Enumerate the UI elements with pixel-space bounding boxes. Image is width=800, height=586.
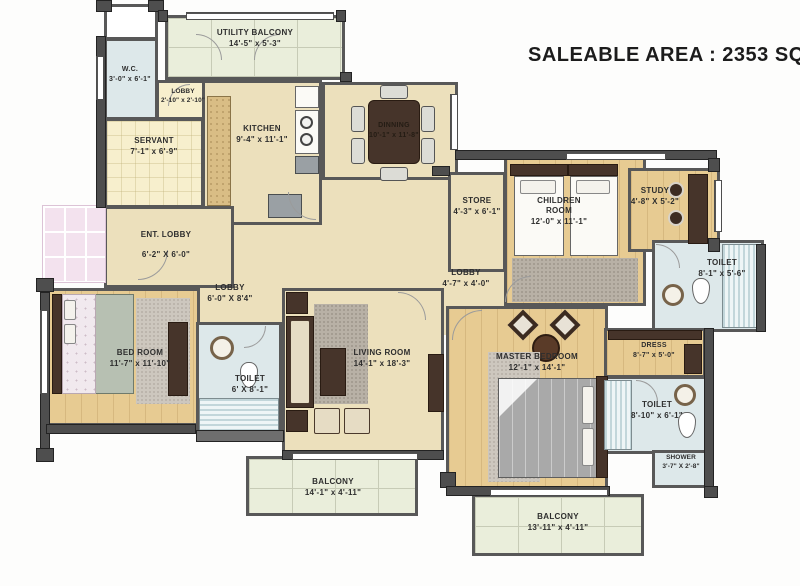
- bed-blanket-fold: [499, 379, 537, 417]
- wall: [46, 424, 196, 434]
- kitchen-cabinet: [207, 96, 231, 206]
- room-label-balcony-left: BALCONY14'-1" x 4'-11": [278, 477, 388, 498]
- page-title: SALEABLE AREA : 2353 SQ.FT: [528, 44, 788, 67]
- dining-chair: [380, 85, 408, 99]
- bed-headboard: [510, 164, 568, 176]
- side-table: [286, 292, 308, 314]
- room-label-living-room: LIVING ROOM14'-1" x 18'-3": [330, 348, 434, 369]
- room-label-utility-balcony: UTILITY BALCONY14'-5" x 5'-3": [185, 28, 325, 49]
- kitchen-counter: [295, 156, 319, 174]
- window: [490, 488, 608, 496]
- room-label-store: STORE4'-3" x 6'-1": [446, 196, 508, 217]
- room-label-ent-lobby: ENT. LOBBY6'-2" X 6'-0": [110, 230, 222, 260]
- stool: [668, 210, 684, 226]
- pillow: [64, 324, 76, 344]
- room-label-master-bedroom: MASTER BEDROOM12'-1" x 14'-1": [478, 352, 596, 373]
- wall: [336, 10, 346, 22]
- wall: [340, 72, 352, 82]
- room-label-wc: W.C.3'-0" x 6'-1": [100, 66, 160, 85]
- room-label-dress: DRESS8'-7" x 5'-0": [622, 342, 686, 361]
- pillow: [64, 300, 76, 320]
- armchair: [344, 408, 370, 434]
- wardrobe: [684, 344, 702, 374]
- wardrobe: [608, 330, 702, 340]
- room-label-lobby-left: LOBBY6'-0" X 8'4": [196, 283, 264, 304]
- window: [292, 452, 418, 460]
- window: [186, 12, 334, 20]
- wall: [708, 158, 720, 172]
- sofa-cushions: [290, 320, 310, 404]
- room-label-toilet-master: TOILET8'-10" x 6'-1": [622, 400, 692, 421]
- wall: [704, 486, 718, 498]
- room-label-toilet-study: TOILET8'-1" x 5'-6": [682, 258, 762, 279]
- vanity-counter: [722, 244, 760, 328]
- wall: [196, 430, 284, 442]
- shower-area: [199, 398, 279, 432]
- window: [450, 94, 458, 150]
- kitchen-sink: [295, 86, 319, 108]
- pillow: [582, 386, 594, 424]
- study-desk: [688, 174, 708, 244]
- room-label-study: STUDY4'-8" X 5'-2": [610, 186, 700, 207]
- window: [566, 152, 666, 160]
- wall: [432, 166, 450, 176]
- dining-chair: [351, 138, 365, 164]
- pillow: [582, 428, 594, 466]
- room-servant: [104, 118, 204, 208]
- room-label-bed-room: BED ROOM11'-7" x 11'-10": [94, 348, 186, 369]
- wall: [36, 278, 54, 292]
- pillow: [576, 180, 610, 194]
- bed-headboard: [52, 294, 62, 394]
- room-label-lobby-top: LOBBY2'-10" x 2'-10": [146, 88, 220, 105]
- room-label-dinning: DINNING10'-1" x 11'-8": [352, 122, 436, 141]
- room-store: [448, 172, 506, 272]
- wall: [158, 10, 168, 22]
- wash-basin: [210, 336, 234, 360]
- wall: [36, 448, 54, 462]
- window: [714, 180, 722, 232]
- dining-chair: [421, 138, 435, 164]
- wall: [708, 238, 720, 252]
- wash-basin: [662, 284, 684, 306]
- window: [40, 310, 48, 394]
- room-label-kitchen: KITCHEN9'-4" x 11'-1": [208, 124, 316, 145]
- bed-headboard: [568, 164, 618, 176]
- room-label-servant: SERVANT7'-1" x 6'-9": [106, 136, 202, 157]
- dining-chair: [380, 167, 408, 181]
- armchair: [314, 408, 340, 434]
- wall: [96, 0, 112, 12]
- room-label-toilet-bed: TOILET6' X 8'-1": [218, 374, 282, 395]
- side-table: [286, 410, 308, 432]
- room-label-lobby-center: LOBBY4'-7" x 4'-0": [428, 268, 504, 289]
- deck-pink: [42, 205, 106, 283]
- pillow: [520, 180, 556, 194]
- room-label-balcony-right: BALCONY13'-11" x 4'-11": [498, 512, 618, 533]
- floor-plan: SALEABLE AREA : 2353 SQ.FT UTILITY BALCO…: [0, 0, 800, 586]
- room-label-children-room: CHILDREN ROOM12'-0" x 11'-1": [524, 196, 594, 227]
- room-label-shower: SHOWER3'-7" X 2'-8": [650, 454, 712, 471]
